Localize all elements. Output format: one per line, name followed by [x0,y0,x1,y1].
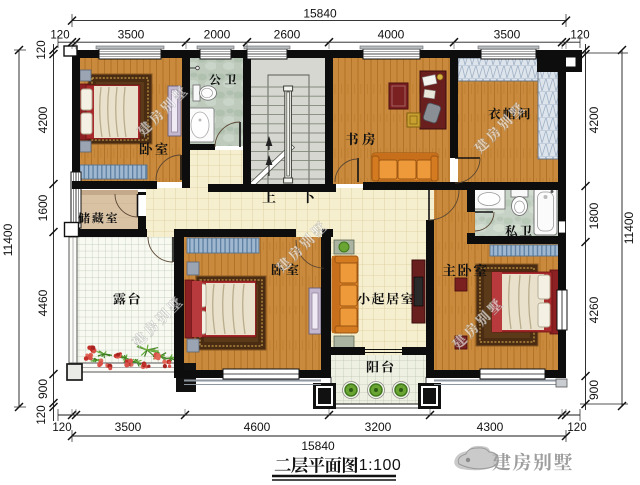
svg-text:3200: 3200 [365,420,392,434]
svg-text:11400: 11400 [622,211,636,244]
svg-text:4600: 4600 [244,420,271,434]
svg-text:120: 120 [36,40,48,59]
svg-text:1600: 1600 [36,194,50,221]
svg-text:4460: 4460 [36,289,50,316]
svg-text:4300: 4300 [477,420,504,434]
svg-text:120: 120 [36,405,48,424]
svg-text:120: 120 [567,422,586,434]
svg-text:3500: 3500 [494,28,521,42]
svg-text:120: 120 [50,30,69,42]
svg-text:3500: 3500 [118,28,145,42]
svg-text:15840: 15840 [303,7,337,21]
svg-text:2000: 2000 [204,28,231,42]
svg-text:4200: 4200 [587,106,601,133]
svg-text:900: 900 [36,379,50,399]
svg-text:2600: 2600 [274,28,301,42]
svg-text:3500: 3500 [115,420,142,434]
svg-text:120: 120 [570,30,589,42]
svg-text:15840: 15840 [301,439,335,453]
svg-text:900: 900 [587,380,601,400]
svg-text:1800: 1800 [587,202,601,229]
svg-text:1:100: 1:100 [359,457,402,474]
svg-text:4260: 4260 [587,296,601,323]
svg-text:120: 120 [52,422,71,434]
svg-text:4000: 4000 [378,28,405,42]
svg-text:11400: 11400 [1,223,15,256]
svg-text:4200: 4200 [36,106,50,133]
